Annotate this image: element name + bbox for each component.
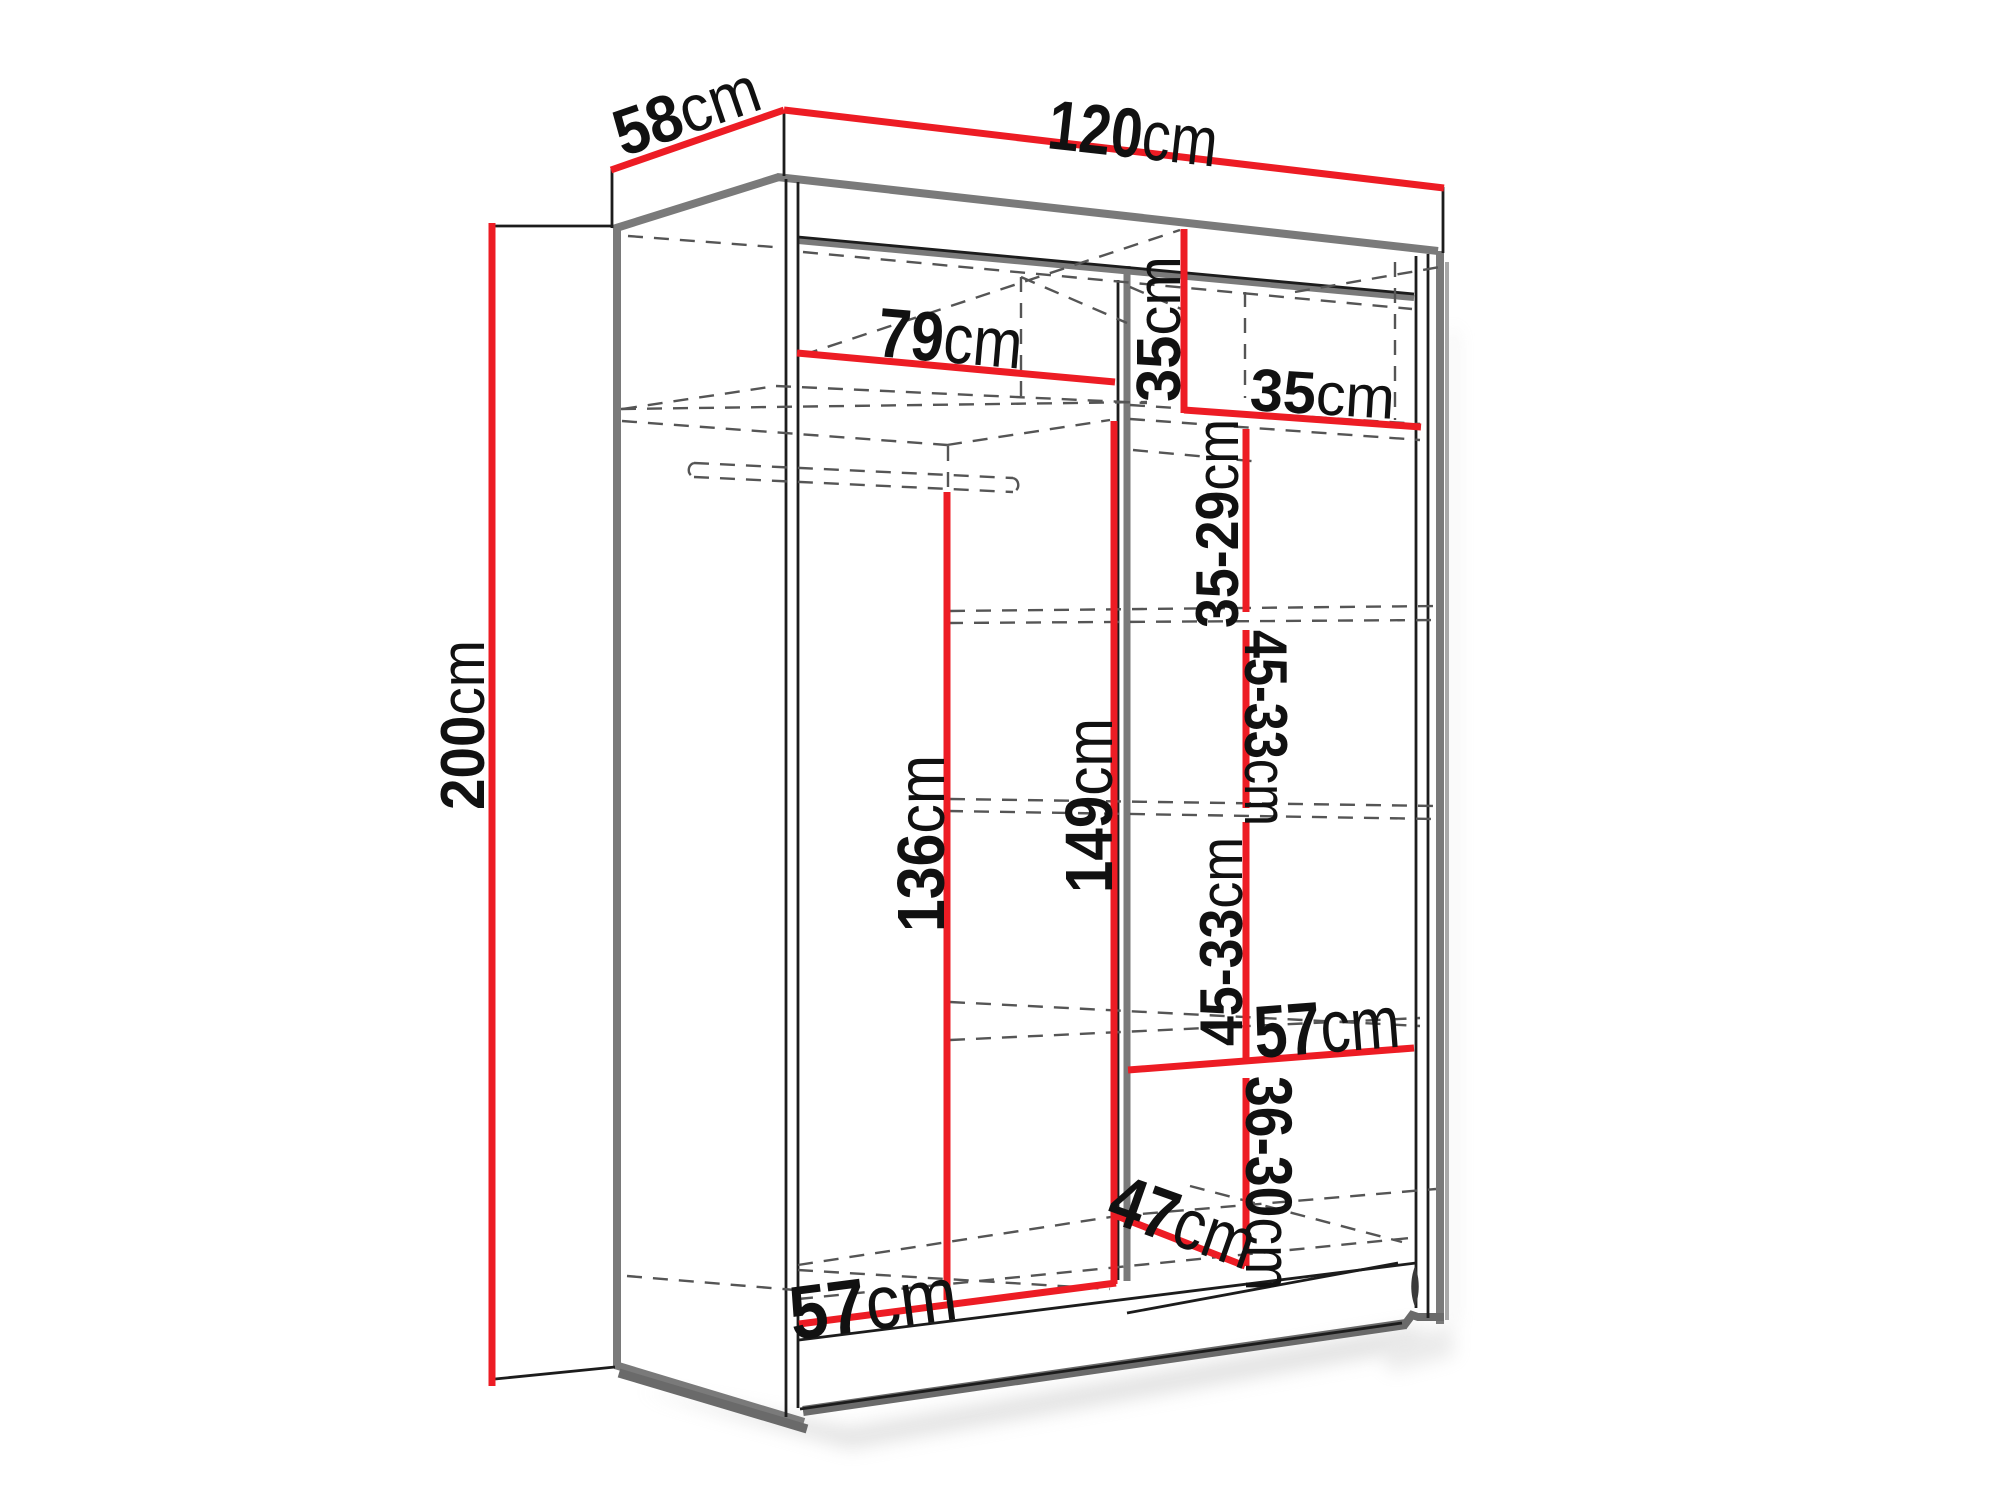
svg-text:200cm: 200cm xyxy=(429,640,498,810)
svg-text:79cm: 79cm xyxy=(875,293,1026,383)
svg-text:136cm: 136cm xyxy=(884,755,959,932)
svg-text:35cm: 35cm xyxy=(1248,356,1397,432)
svg-text:45-33cm: 45-33cm xyxy=(1232,630,1299,826)
svg-text:35-29cm: 35-29cm xyxy=(1184,419,1251,628)
svg-text:57cm: 57cm xyxy=(1251,980,1403,1074)
svg-text:45-33cm: 45-33cm xyxy=(1188,837,1255,1046)
svg-text:149cm: 149cm xyxy=(1052,718,1127,893)
svg-text:35cm: 35cm xyxy=(1125,256,1194,402)
